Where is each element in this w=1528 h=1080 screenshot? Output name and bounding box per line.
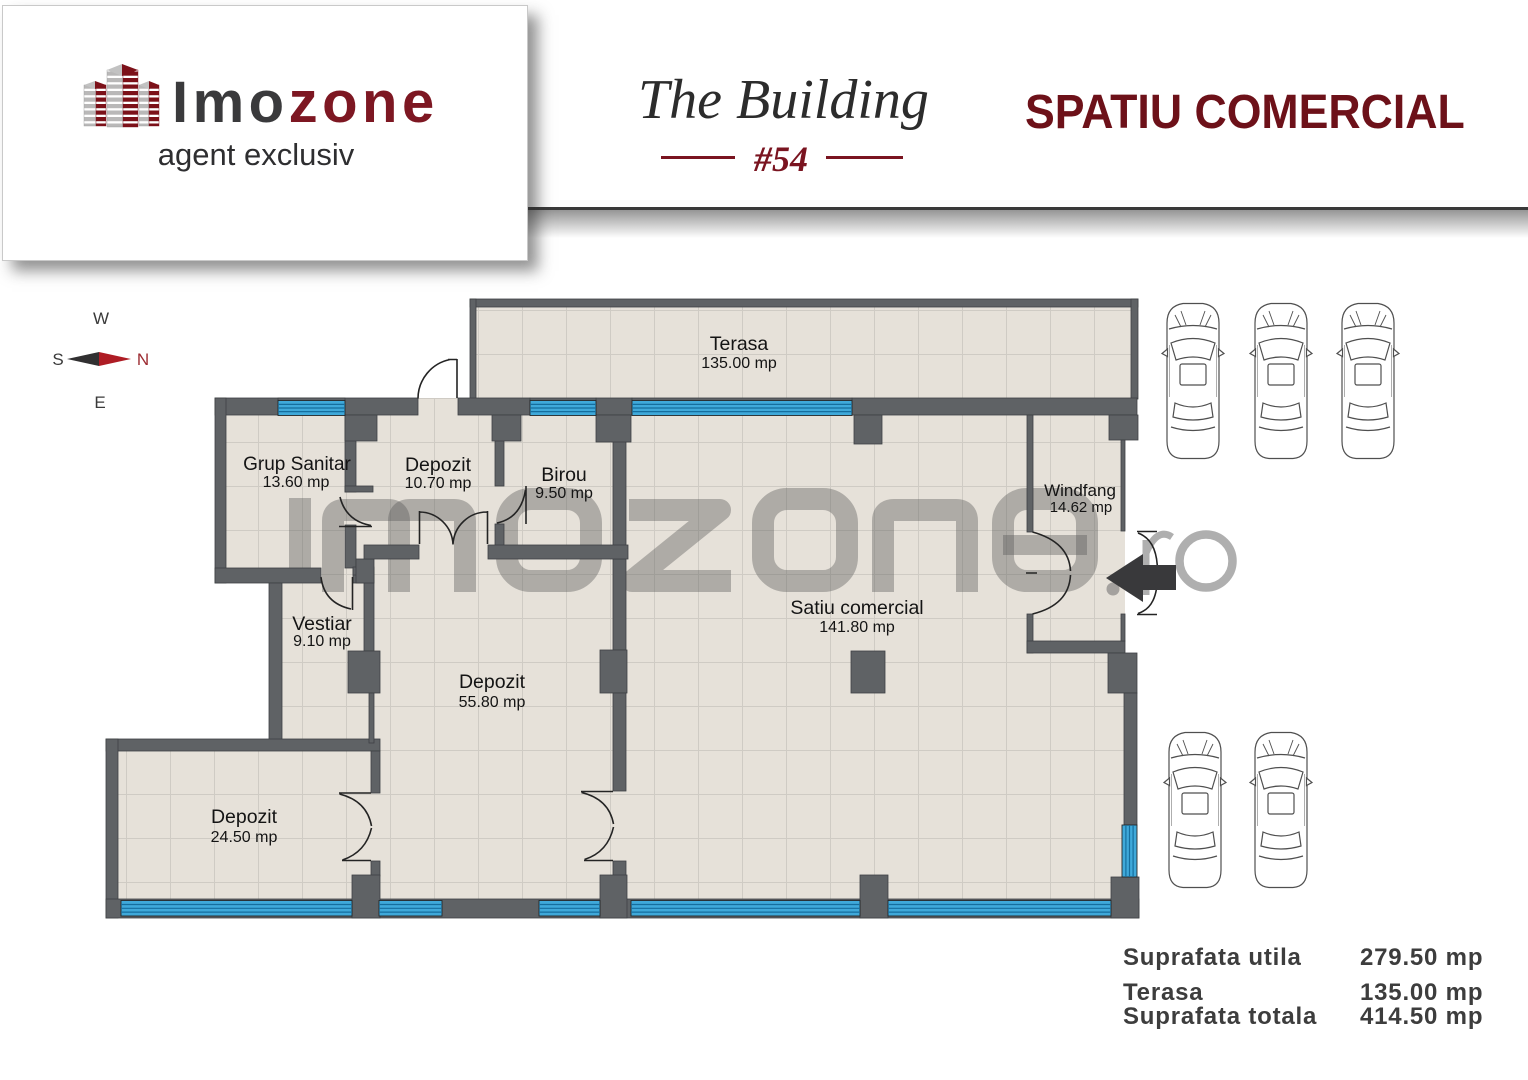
svg-text:Terasa: Terasa xyxy=(710,333,769,355)
svg-text:135.00 mp: 135.00 mp xyxy=(701,355,777,372)
svg-text:Suprafata utila: Suprafata utila xyxy=(1123,944,1302,971)
svg-text:Grup Sanitar: Grup Sanitar xyxy=(243,454,351,475)
svg-text:N: N xyxy=(137,350,149,369)
svg-text:10.70 mp: 10.70 mp xyxy=(405,475,472,492)
svg-text:279.50 mp: 279.50 mp xyxy=(1360,944,1483,971)
svg-text:Terasa: Terasa xyxy=(1123,979,1203,1006)
svg-text:24.50 mp: 24.50 mp xyxy=(211,829,278,846)
svg-text:Windfang: Windfang xyxy=(1044,481,1116,500)
svg-text:135.00 mp: 135.00 mp xyxy=(1360,979,1483,1006)
svg-text:9.10 mp: 9.10 mp xyxy=(293,633,351,650)
svg-text:E: E xyxy=(94,393,105,412)
svg-text:Satiu comercial: Satiu comercial xyxy=(790,597,923,619)
svg-text:414.50 mp: 414.50 mp xyxy=(1360,1003,1483,1030)
svg-text:13.60 mp: 13.60 mp xyxy=(263,474,330,491)
svg-text:14.62 mp: 14.62 mp xyxy=(1050,499,1113,516)
svg-text:W: W xyxy=(93,309,109,328)
svg-text:Suprafata totala: Suprafata totala xyxy=(1123,1003,1317,1030)
svg-text:55.80 mp: 55.80 mp xyxy=(459,694,526,711)
svg-text:Vestiar: Vestiar xyxy=(292,613,352,635)
svg-text:Depozit: Depozit xyxy=(211,806,278,828)
svg-text:Depozit: Depozit xyxy=(405,454,472,476)
svg-text:Birou: Birou xyxy=(541,464,587,486)
svg-text:9.50 mp: 9.50 mp xyxy=(535,485,593,502)
svg-text:141.80 mp: 141.80 mp xyxy=(819,619,895,636)
svg-text:Depozit: Depozit xyxy=(459,671,526,693)
svg-text:S: S xyxy=(52,350,63,369)
